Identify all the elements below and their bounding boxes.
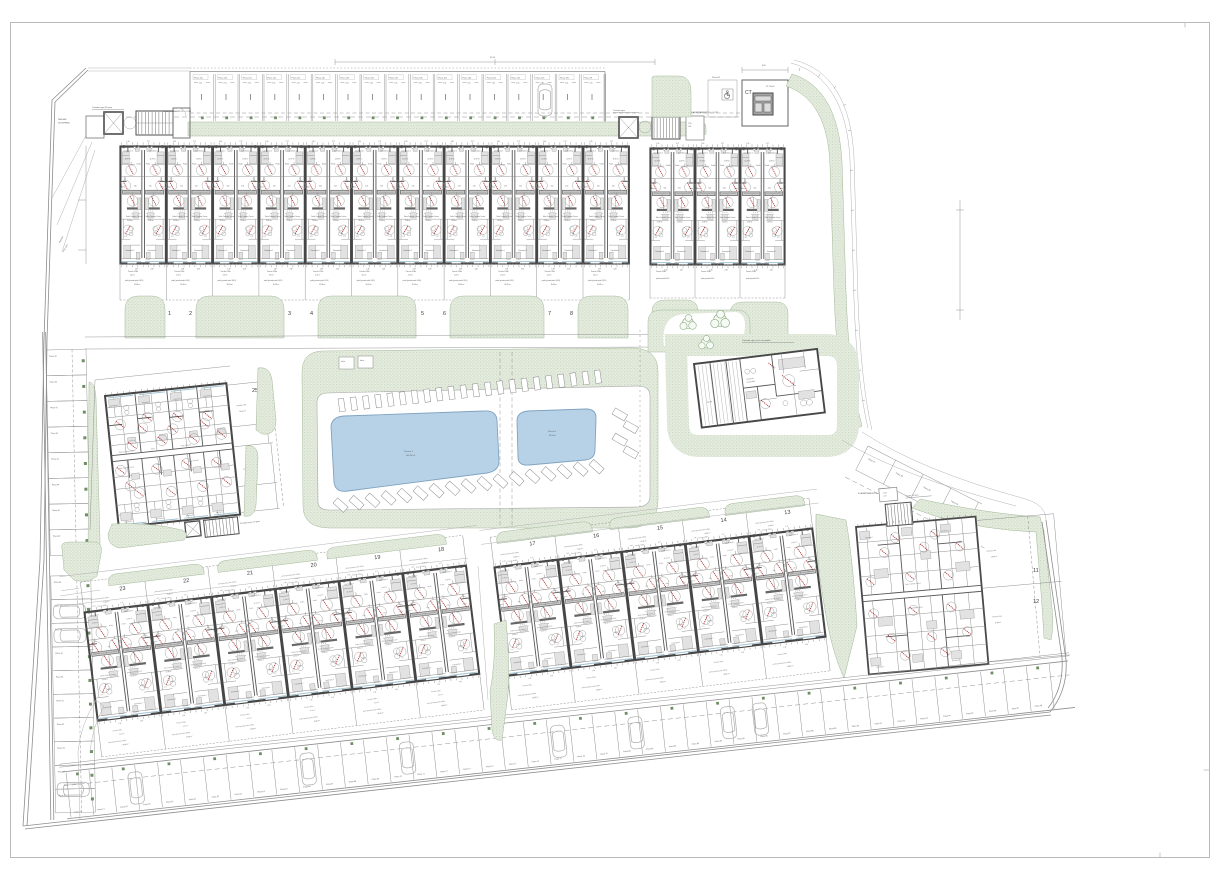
svg-text:Plaza 98: Plaza 98 (712, 77, 721, 79)
svg-text:Plaza 49: Plaza 49 (55, 653, 62, 655)
svg-text:CT: CT (745, 90, 752, 96)
svg-text:1: 1 (168, 311, 171, 317)
svg-text:Parcela 1/2Ba: Parcela 1/2Ba (313, 271, 323, 273)
svg-text:Plaza 105: Plaza 105 (438, 78, 448, 80)
svg-text:Plaza 107: Plaza 107 (389, 78, 399, 80)
svg-text:2.50: 2.50 (248, 83, 251, 85)
svg-text:20: 20 (310, 562, 317, 569)
svg-text:Piscina 1: Piscina 1 (404, 451, 414, 453)
svg-text:146.20 m²: 146.20 m² (406, 454, 415, 457)
svg-text:Plaza 39: Plaza 39 (49, 356, 56, 358)
svg-text:2.50: 2.50 (297, 83, 300, 85)
svg-text:26 APARTAMENTOS - COPI: 26 APARTAMENTOS - COPI (690, 111, 718, 114)
svg-text:21.75m2: 21.75m2 (766, 86, 775, 88)
svg-text:2.50: 2.50 (565, 83, 568, 85)
svg-text:Plaza 102: Plaza 102 (511, 78, 521, 80)
svg-text:Plaza 46: Plaza 46 (53, 536, 60, 538)
svg-text:26 APARTAMENTOS - COPI: 26 APARTAMENTOS - COPI (163, 110, 191, 113)
svg-text:Plaza 100: Plaza 100 (560, 78, 570, 80)
svg-text:ducha: ducha (360, 360, 364, 362)
svg-text:2.50: 2.50 (589, 83, 592, 85)
svg-text:2.50: 2.50 (321, 83, 324, 85)
svg-text:Plaza 44: Plaza 44 (52, 484, 59, 486)
svg-text:22: 22 (183, 578, 190, 585)
svg-text:2.50: 2.50 (272, 83, 275, 85)
svg-text:DE ESPERA: DE ESPERA (58, 122, 70, 125)
svg-text:LUZ: LUZ (688, 126, 691, 128)
svg-text:Parcela 1/2Ba: Parcela 1/2Ba (656, 271, 666, 273)
svg-text:5: 5 (421, 311, 424, 317)
svg-text:Plaza 51: Plaza 51 (56, 700, 63, 702)
svg-text:Plaza 104: Plaza 104 (462, 78, 472, 80)
svg-text:2.50: 2.50 (345, 83, 348, 85)
svg-text:2.50: 2.50 (199, 83, 202, 85)
svg-text:Piscina 2: Piscina 2 (548, 431, 557, 433)
svg-text:Parcela 1/2Ba: Parcela 1/2Ba (174, 271, 184, 273)
svg-text:2.50: 2.50 (223, 83, 226, 85)
svg-text:2.50: 2.50 (419, 83, 422, 85)
svg-text:Plaza 46: Plaza 46 (54, 582, 61, 584)
svg-text:Plaza 45: Plaza 45 (52, 510, 59, 512)
svg-text:Parcela 1/2Ba: Parcela 1/2Ba (128, 271, 138, 273)
svg-text:Parcela 1/2Ba: Parcela 1/2Ba (452, 271, 462, 273)
svg-text:Parcela 1/2Ba: Parcela 1/2Ba (498, 271, 508, 273)
svg-text:15: 15 (657, 525, 664, 532)
svg-text:Plaza 43: Plaza 43 (51, 459, 58, 461)
svg-text:Contador agua y luz comunidad: Contador agua y luz comunidad (742, 339, 770, 342)
svg-text:Plaza 106: Plaza 106 (414, 78, 424, 80)
svg-text:6: 6 (443, 311, 446, 317)
svg-text:23: 23 (119, 586, 126, 593)
svg-text:Parcela 1/2Ba: Parcela 1/2Ba (221, 271, 231, 273)
svg-text:Plaza 101: Plaza 101 (536, 78, 546, 80)
svg-text:ducha: ducha (341, 361, 345, 363)
svg-text:Plaza 112: Plaza 112 (267, 78, 277, 80)
svg-text:Plaza 40: Plaza 40 (50, 381, 57, 383)
svg-text:ZAGUAN: ZAGUAN (58, 118, 67, 121)
svg-text:Plaza 115: Plaza 115 (194, 78, 204, 80)
svg-text:13: 13 (784, 509, 791, 516)
svg-text:2.50: 2.50 (516, 83, 519, 85)
svg-text:7: 7 (548, 311, 551, 317)
svg-text:2.50: 2.50 (443, 83, 446, 85)
svg-text:36.00 m²: 36.00 m² (549, 434, 556, 437)
svg-text:18: 18 (438, 547, 445, 554)
svg-text:Plaza 109: Plaza 109 (340, 78, 350, 80)
svg-text:2.50: 2.50 (492, 83, 495, 85)
svg-text:Parcela 1/2Ba: Parcela 1/2Ba (406, 271, 416, 273)
svg-text:Plaza 114: Plaza 114 (218, 78, 228, 80)
svg-text:21: 21 (247, 570, 254, 577)
svg-text:Contador agua 26 apart: Contador agua 26 apart (92, 106, 112, 109)
svg-text:2.50: 2.50 (467, 83, 470, 85)
svg-text:Plaza 103: Plaza 103 (487, 78, 497, 80)
svg-text:Parcela 1/2Ba: Parcela 1/2Ba (545, 271, 555, 273)
svg-text:Plaza 99: Plaza 99 (584, 78, 593, 80)
svg-text:11: 11 (1033, 568, 1039, 574)
svg-text:Plaza 53: Plaza 53 (57, 748, 64, 750)
svg-text:Plaza 110: Plaza 110 (316, 78, 326, 80)
svg-text:Plaza 52: Plaza 52 (57, 724, 64, 726)
svg-text:Plaza 113: Plaza 113 (243, 78, 253, 80)
svg-text:45.94: 45.94 (490, 57, 496, 59)
svg-text:Parcela 1/2Ba: Parcela 1/2Ba (360, 271, 370, 273)
svg-text:6.80: 6.80 (762, 65, 766, 67)
svg-text:14: 14 (720, 517, 727, 524)
svg-text:Parcela 1/2Ba: Parcela 1/2Ba (701, 271, 711, 273)
svg-text:8: 8 (570, 311, 573, 317)
svg-text:2.50: 2.50 (394, 83, 397, 85)
svg-text:2.50: 2.50 (370, 83, 373, 85)
svg-text:Plaza 41: Plaza 41 (50, 407, 57, 409)
svg-text:Contador agua: Contador agua (613, 109, 625, 112)
svg-text:19: 19 (374, 554, 381, 561)
svg-text:LUZ: LUZ (883, 495, 886, 497)
svg-text:2: 2 (189, 311, 192, 317)
svg-text:16: 16 (593, 533, 600, 540)
svg-text:3: 3 (288, 311, 291, 317)
svg-text:Parcela 1/2Ba: Parcela 1/2Ba (267, 271, 277, 273)
svg-text:Plaza 111: Plaza 111 (292, 78, 301, 80)
svg-text:12: 12 (1033, 599, 1039, 605)
svg-text:Parcela 1/2Ba: Parcela 1/2Ba (746, 271, 756, 273)
svg-text:Plaza 42: Plaza 42 (51, 433, 58, 435)
svg-text:Plaza 50: Plaza 50 (56, 677, 63, 679)
svg-text:17: 17 (529, 541, 536, 548)
svg-text:4: 4 (310, 311, 313, 317)
svg-text:Plaza 108: Plaza 108 (365, 78, 375, 80)
svg-text:Parcela 1/2Ba: Parcela 1/2Ba (591, 271, 601, 273)
